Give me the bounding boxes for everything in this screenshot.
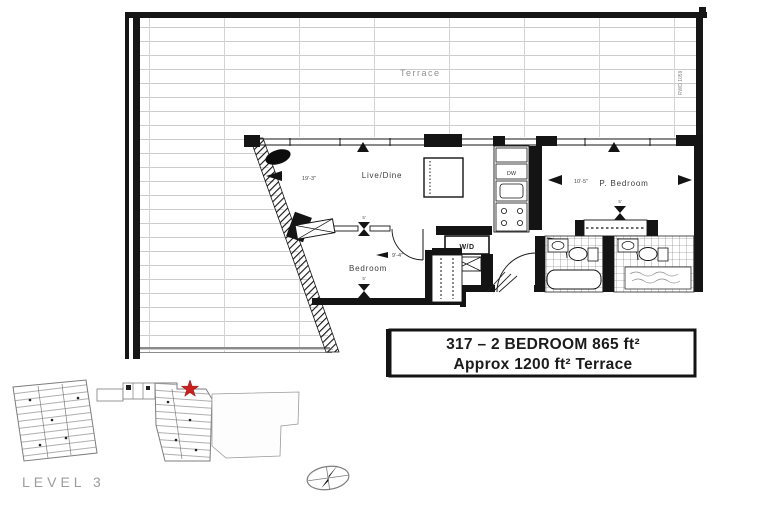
key-plan-link bbox=[97, 389, 123, 401]
dishwasher-label: DW bbox=[507, 171, 517, 177]
sink-icon bbox=[500, 184, 523, 198]
unit-wall-right bbox=[694, 135, 703, 292]
info-box: 317 – 2 BEDROOM 865 ft² Approx 1200 ft² … bbox=[386, 329, 695, 377]
bath-divider-wall bbox=[603, 236, 614, 292]
toilet-icon bbox=[639, 248, 657, 261]
live-dine-dim: 19'-3" bbox=[302, 176, 316, 182]
bedroom-dim: 9'-4" bbox=[392, 253, 403, 259]
live-dine-label: Live/Dine bbox=[362, 171, 403, 180]
dim-marker bbox=[358, 222, 370, 229]
key-plan-right-wing bbox=[155, 383, 212, 461]
terrace-note-vertical: RWD 1059 bbox=[678, 70, 684, 95]
dim-arrow bbox=[376, 252, 388, 258]
bedroom-label: Bedroom bbox=[349, 264, 387, 273]
bedroom-marker-bottom-label: 5' bbox=[362, 276, 366, 281]
dim-marker bbox=[358, 291, 370, 298]
kitchen: DW bbox=[494, 146, 542, 232]
top-window-band bbox=[248, 139, 696, 145]
level-label: LEVEL 3 bbox=[22, 474, 105, 490]
terrace-wall-left-outer bbox=[125, 12, 129, 359]
dim-marker bbox=[614, 213, 626, 220]
p-bedroom-room: 10'-5" P. Bedroom 5' bbox=[548, 175, 692, 236]
key-plan: LEVEL 3 bbox=[13, 380, 299, 490]
kitchen-wall bbox=[529, 146, 542, 230]
p-bedroom-dim: 10'-5" bbox=[574, 179, 588, 185]
p-bedroom-label: P. Bedroom bbox=[599, 179, 648, 188]
bathrooms bbox=[535, 236, 694, 292]
live-dine-room: 19'-3" Live/Dine bbox=[266, 158, 463, 197]
entry-door-arc bbox=[497, 253, 536, 292]
kitchen-island bbox=[424, 158, 463, 197]
dim-marker bbox=[614, 206, 626, 213]
dim-marker bbox=[358, 284, 370, 291]
floorplan-page: Terrace RWD 1059 19'-3" Live/Dine bbox=[0, 0, 760, 505]
terrace-wall-top bbox=[125, 12, 707, 18]
floorplan-svg: Terrace RWD 1059 19'-3" Live/Dine bbox=[0, 0, 760, 505]
wall-block bbox=[536, 136, 557, 146]
wall-block bbox=[424, 134, 462, 147]
bathtub-icon bbox=[547, 270, 601, 289]
stove-icon bbox=[496, 203, 527, 231]
unit-title: 317 – 2 BEDROOM 865 ft² bbox=[446, 336, 640, 353]
terrace-label: Terrace bbox=[400, 68, 441, 78]
terrace-wall-right bbox=[696, 12, 703, 138]
bedroom-closet bbox=[432, 255, 462, 302]
terrace-wall-left-inner bbox=[133, 12, 140, 359]
fridge-icon bbox=[496, 148, 527, 162]
shower-base bbox=[625, 267, 691, 289]
bedroom-marker-top-label: 5' bbox=[362, 215, 366, 220]
wall-block bbox=[493, 136, 505, 146]
dim-marker bbox=[358, 229, 370, 236]
key-plan-left-wing bbox=[13, 380, 97, 461]
p-bedroom-closet-dim: 5' bbox=[618, 199, 622, 204]
dim-arrow bbox=[548, 175, 562, 185]
north-arrow-compass bbox=[306, 464, 351, 493]
toilet-icon bbox=[569, 248, 587, 261]
terrace-size-note: Approx 1200 ft² Terrace bbox=[454, 356, 633, 373]
dim-arrow bbox=[678, 175, 692, 185]
key-plan-site-outline bbox=[212, 392, 299, 458]
